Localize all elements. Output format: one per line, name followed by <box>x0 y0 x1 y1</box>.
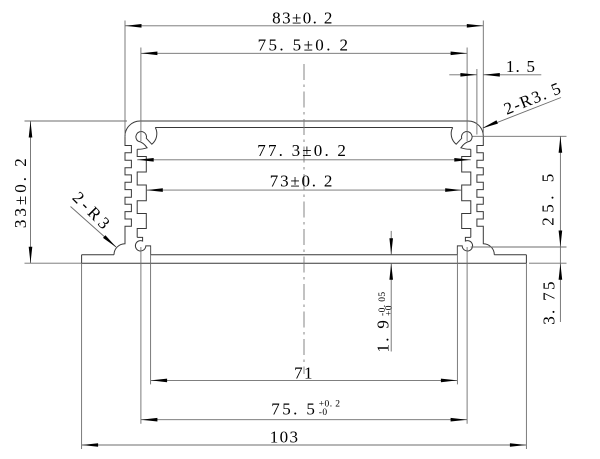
svg-text:1. 5: 1. 5 <box>506 57 536 76</box>
svg-text:33±0. 2: 33±0. 2 <box>11 155 30 228</box>
svg-text:75. 5±0. 2: 75. 5±0. 2 <box>258 36 351 55</box>
svg-text:25. 5: 25. 5 <box>539 169 558 226</box>
svg-text:+0: +0 <box>384 305 394 316</box>
svg-text:3. 75: 3. 75 <box>540 279 559 325</box>
svg-text:75. 5: 75. 5 <box>271 399 317 418</box>
svg-text:73±0. 2: 73±0. 2 <box>270 172 334 191</box>
svg-text:83±0. 2: 83±0. 2 <box>272 8 334 27</box>
svg-text:77. 3±0. 2: 77. 3±0. 2 <box>257 141 348 160</box>
svg-text:-0: -0 <box>319 408 328 418</box>
svg-text:1. 9: 1. 9 <box>374 318 393 353</box>
svg-text:71: 71 <box>294 364 314 383</box>
svg-text:103: 103 <box>270 427 300 446</box>
